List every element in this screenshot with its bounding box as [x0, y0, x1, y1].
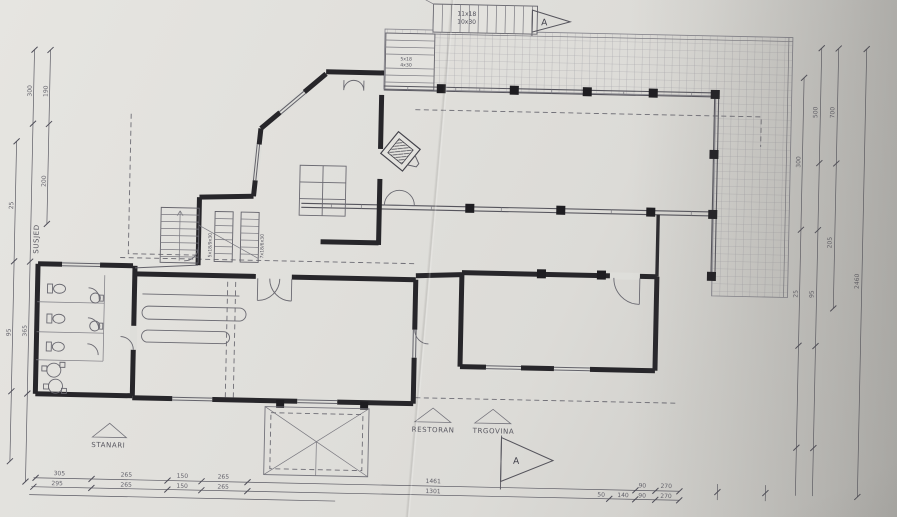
dim-b2-3: 265	[217, 484, 229, 491]
stair-label-top-2: 10x30	[457, 19, 476, 26]
entrance-restaurant: RESTORAN	[412, 408, 455, 435]
section-marker-bottom: A	[500, 436, 553, 491]
dim-right-4: 700	[829, 107, 836, 119]
dim-b1-0: 305	[54, 470, 66, 477]
scanned-floor-plan-photo: 11x18 10x30 5x18 4x30 A A	[0, 0, 897, 517]
dim-b1-3: 265	[218, 474, 230, 481]
dim-left-3: 365	[22, 325, 29, 337]
terrace-tiles	[380, 29, 793, 297]
dim-b2-8: 270	[660, 493, 672, 500]
stair-label-side-1: 5x18	[400, 56, 412, 62]
stair-label-inner-right: 7x18/6x30	[259, 234, 266, 259]
window-openings	[59, 86, 643, 409]
dim-right-2: 500	[812, 106, 819, 118]
walls	[35, 66, 661, 409]
dimension-chain-right: 300 25 500 95 700 205 2460	[788, 45, 869, 500]
dim-right-0: 300	[795, 156, 802, 168]
dim-b2-4: 1301	[425, 488, 441, 495]
dim-b2-0: 295	[51, 480, 63, 487]
dim-b2-2: 150	[176, 483, 188, 490]
dim-b1-5: 90	[638, 482, 646, 489]
dim-left-5: 200	[41, 175, 48, 187]
doors	[87, 75, 644, 366]
floor-plan-svg: 11x18 10x30 5x18 4x30 A A	[0, 0, 897, 517]
dim-b2-1: 265	[120, 482, 132, 489]
dim-b1-6: 270	[660, 483, 672, 490]
stair-label-inner-left: 5x18/9x30	[207, 233, 214, 258]
dim-left-1: 95	[6, 328, 13, 336]
stair-label-side-2: 4x30	[400, 62, 412, 68]
interior-stairs: 5x18/9x30 7x18/6x30	[160, 207, 266, 264]
entrance-shop-label: TRGOVINA	[472, 427, 515, 436]
dim-left-2: 300	[27, 85, 34, 97]
dim-b1-2: 150	[177, 473, 189, 480]
stair-label-top-1: 11x18	[457, 11, 476, 18]
neighbor-label: SUSJED	[32, 224, 41, 254]
dim-b2-5: 50	[597, 492, 605, 499]
section-marker-bottom-letter: A	[513, 457, 520, 467]
dim-left-4: 190	[43, 85, 50, 97]
fireplace	[380, 131, 427, 176]
entrance-tenants: STANARI	[91, 423, 127, 450]
dim-left-0: 25	[8, 201, 15, 209]
wc-fixtures	[36, 274, 105, 361]
exterior-stairs-side: 5x18 4x30	[385, 33, 435, 90]
porch	[264, 407, 369, 477]
entrance-shop: TRGOVINA	[472, 409, 515, 436]
dim-b1-4: 1461	[425, 478, 441, 485]
tables-chairs	[41, 362, 67, 394]
exterior-stairs-top: 11x18 10x30	[425, 0, 538, 34]
section-marker-top-letter: A	[541, 18, 548, 28]
dim-right-1: 25	[793, 290, 800, 298]
entrance-restaurant-label: RESTORAN	[412, 426, 455, 435]
dim-right-3: 95	[808, 290, 815, 298]
dim-b2-6: 140	[617, 492, 629, 499]
dim-right-5: 205	[827, 237, 834, 249]
dim-right-6: 2460	[854, 273, 861, 289]
bar-counter	[141, 294, 246, 344]
dim-b1-1: 265	[121, 472, 133, 479]
dim-b2-7: 90	[638, 492, 646, 499]
dimension-chain-bottom: 305 265 150 265 1461 90 270 295 265 150 …	[29, 470, 768, 510]
entrance-tenants-label: STANARI	[91, 441, 125, 450]
